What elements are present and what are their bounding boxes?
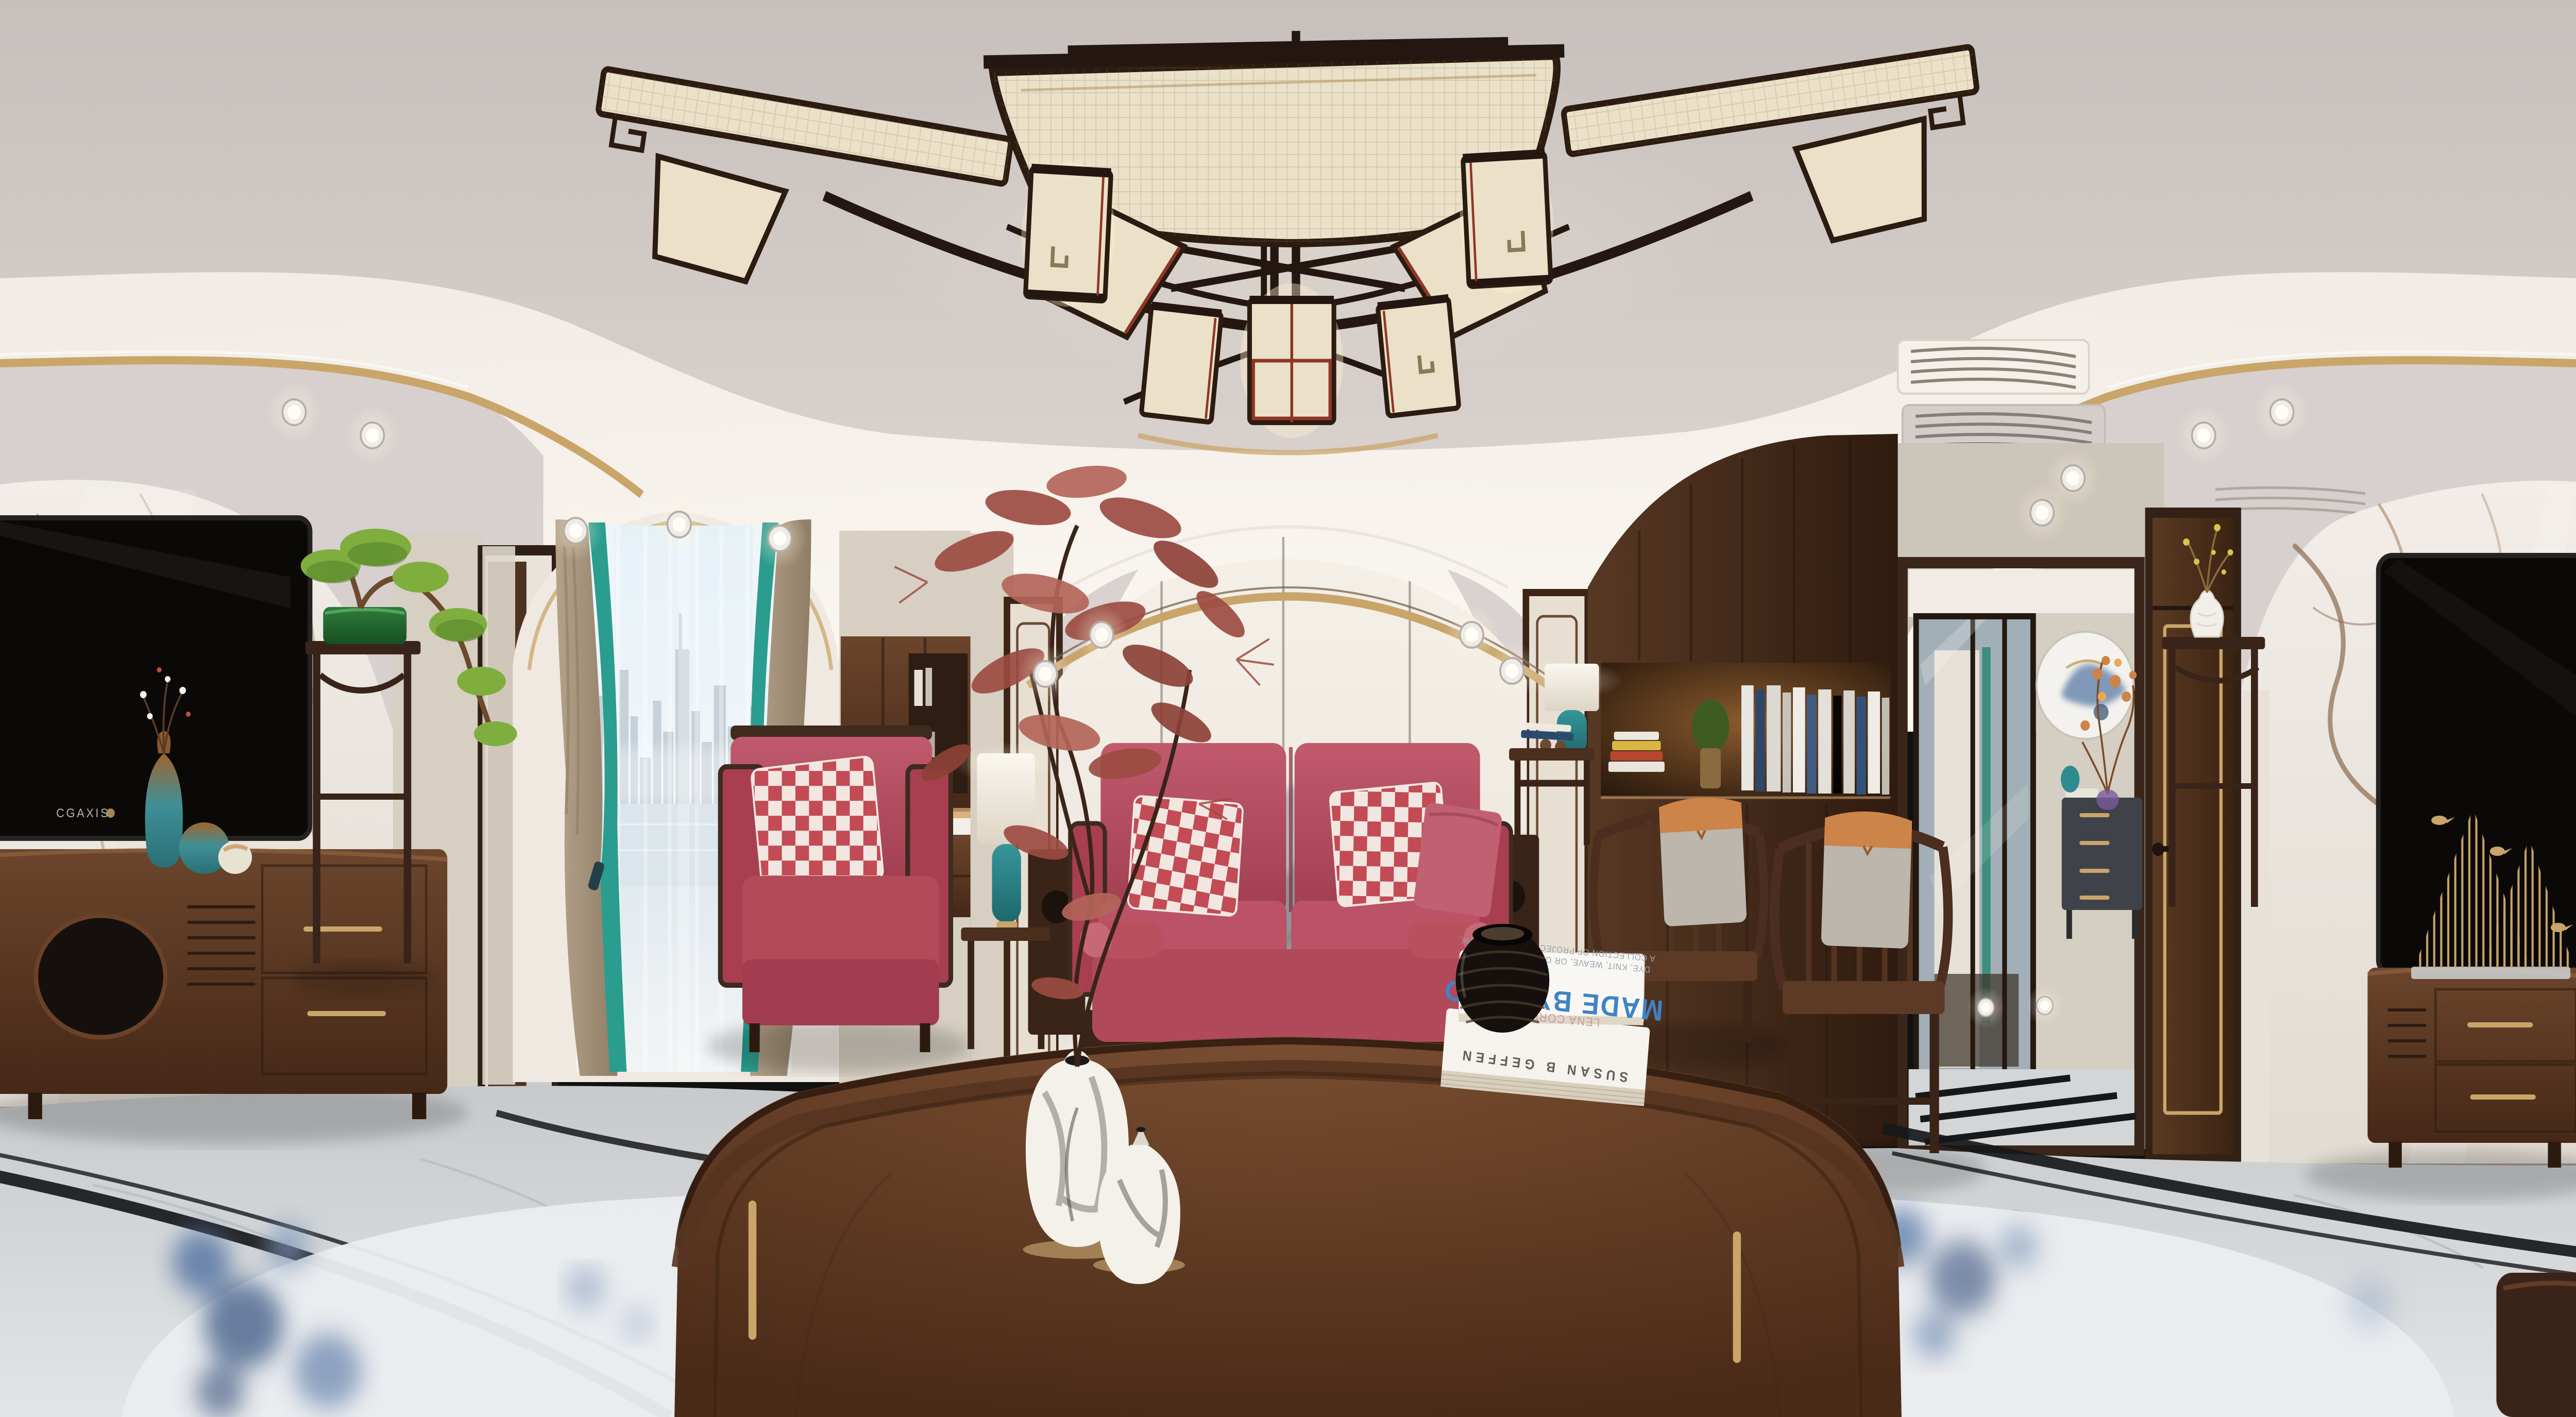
tv-console-left [0,849,468,1144]
table-handle-left [749,1201,756,1340]
shelf-plant [1692,700,1730,753]
drawer-handle [307,1011,386,1016]
hallway-ceiling [1909,569,2134,617]
console-oval-door [36,916,165,1037]
chair-pillow-1 [1658,796,1747,927]
coffee-table [674,1037,1902,1417]
pillow-checkered-chair [751,756,884,893]
table-handle-right [1733,1232,1741,1363]
drawer-handle [2470,1094,2536,1100]
ac-vent-upper [1898,340,2089,394]
side-table-top-left [961,927,1050,941]
flower-vase [2096,789,2119,810]
lantern-box [1141,301,1222,422]
hallway-floor [1909,1069,2136,1145]
drawer-handle [2467,1022,2533,1027]
lantern-box [1018,160,1118,309]
side-table-top-right [1509,748,1594,761]
panorama-canvas: CGAXIS [0,0,2576,1417]
stool [2496,1273,2576,1417]
pillow-checkered-left [1128,796,1243,916]
wall-strip [482,546,515,1085]
lantern-box [1456,147,1557,296]
tv-logo: CGAXIS [56,806,110,820]
lamp-body-left [992,844,1021,922]
teal-vase-small [2061,766,2079,792]
lamp-shade-right [1545,664,1599,711]
lantern-box-center [1240,283,1343,438]
pillow-pink [1413,802,1502,918]
panorama-living-room: CGAXIS [0,0,2576,1417]
tv-logo-icon [106,808,114,818]
chair-seat-2 [1783,981,1945,1014]
lantern-box [1377,294,1459,416]
seat-front [1092,949,1480,1042]
chair-pillow-2 [1821,810,1912,949]
